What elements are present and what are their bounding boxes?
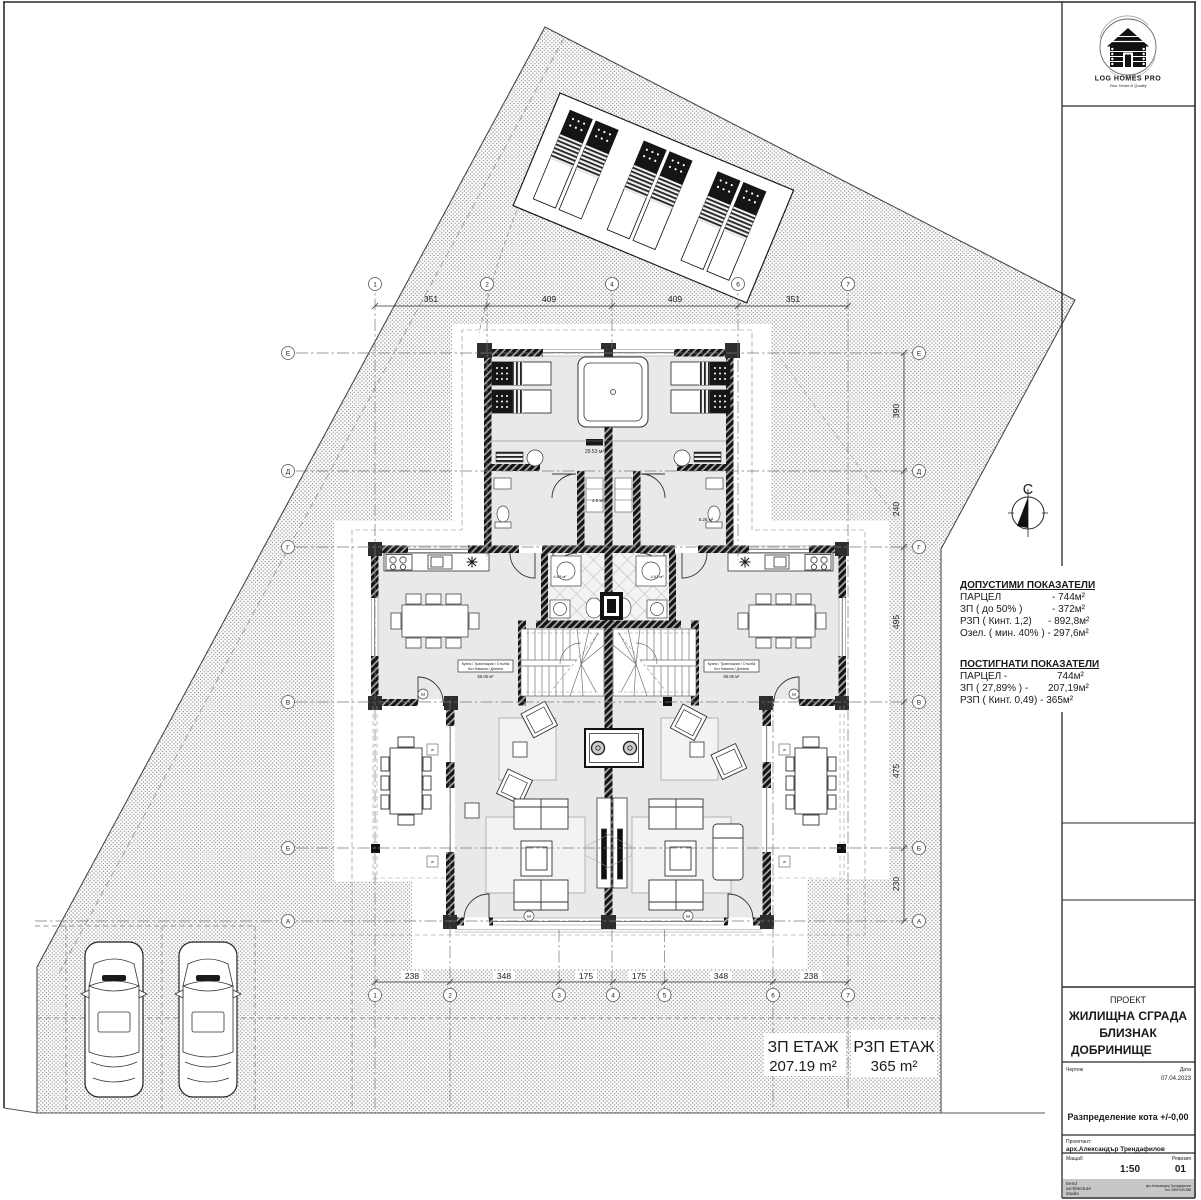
svg-text:230: 230 xyxy=(891,877,901,891)
svg-text:240: 240 xyxy=(891,502,901,516)
svg-text:РЗП ( Кинт. 1,2): РЗП ( Кинт. 1,2) xyxy=(960,616,1032,627)
svg-text:7: 7 xyxy=(846,282,850,289)
svg-text:- 744м²: - 744м² xyxy=(1052,592,1086,603)
svg-text:351: 351 xyxy=(424,294,438,304)
svg-text:4.63 м²: 4.63 м² xyxy=(651,574,665,579)
svg-text:4.0 м²: 4.0 м² xyxy=(592,498,605,503)
svg-text:М: М xyxy=(527,914,531,919)
svg-text:6.26 м²: 6.26 м² xyxy=(699,517,714,522)
svg-text:studio: studio xyxy=(1066,1191,1079,1197)
svg-text:348: 348 xyxy=(497,971,511,981)
svg-text:М: М xyxy=(792,692,796,697)
svg-text:1: 1 xyxy=(373,282,377,289)
svg-text:2: 2 xyxy=(448,993,452,1000)
svg-text:Д: Д xyxy=(917,469,922,476)
svg-text:5: 5 xyxy=(663,993,667,1000)
svg-text:Кът Камина / Дневна: Кът Камина / Дневна xyxy=(468,667,503,671)
svg-text:207,19м²: 207,19м² xyxy=(1048,683,1089,694)
svg-text:w: w xyxy=(783,747,786,752)
svg-text:3: 3 xyxy=(557,993,561,1000)
svg-text:Кухня / Трапезария / Стълба: Кухня / Трапезария / Стълба xyxy=(708,662,756,666)
svg-text:365 m²: 365 m² xyxy=(871,1058,918,1075)
svg-text:6: 6 xyxy=(736,282,740,289)
svg-text:495: 495 xyxy=(891,615,901,629)
svg-text:2: 2 xyxy=(485,282,489,289)
svg-text:ДОБРИНИЩЕ: ДОБРИНИЩЕ xyxy=(1071,1043,1152,1057)
svg-text:ДОПУСТИМИ ПОКАЗАТЕЛИ: ДОПУСТИМИ ПОКАЗАТЕЛИ xyxy=(960,580,1095,591)
svg-text:Мащаб: Мащаб xyxy=(1066,1156,1083,1162)
svg-text:Г: Г xyxy=(917,545,921,552)
svg-text:7: 7 xyxy=(846,993,850,1000)
svg-text:- 892,8м²: - 892,8м² xyxy=(1048,616,1090,627)
svg-text:Кът Камина / Дневна: Кът Камина / Дневна xyxy=(714,667,749,671)
svg-text:409: 409 xyxy=(542,294,556,304)
svg-text:Озел. ( мин. 40% ) - 297,6м²: Озел. ( мин. 40% ) - 297,6м² xyxy=(960,628,1089,639)
svg-text:В: В xyxy=(917,700,921,707)
svg-text:тел. 0899 535 888: тел. 0899 535 888 xyxy=(1165,1188,1191,1192)
svg-text:ПОСТИГНАТИ ПОКАЗАТЕЛИ: ПОСТИГНАТИ ПОКАЗАТЕЛИ xyxy=(960,659,1099,670)
svg-text:Разпределение кота +/-0,00: Разпределение кота +/-0,00 xyxy=(1067,1112,1188,1122)
svg-text:Д: Д xyxy=(286,469,291,476)
svg-text:М: М xyxy=(686,914,690,919)
svg-text:175: 175 xyxy=(632,971,646,981)
svg-text:1:50: 1:50 xyxy=(1120,1164,1140,1175)
svg-text:ЗП ( до 50% ): ЗП ( до 50% ) xyxy=(960,604,1022,615)
svg-text:65.06 м²: 65.06 м² xyxy=(478,674,495,679)
svg-text:01: 01 xyxy=(1175,1164,1187,1175)
svg-text:РЗП ( Кинт. 0,49) - 365м²: РЗП ( Кинт. 0,49) - 365м² xyxy=(960,695,1074,706)
svg-text:Е: Е xyxy=(917,351,922,358)
svg-text:ПАРЦЕЛ: ПАРЦЕЛ xyxy=(960,592,1001,603)
svg-text:238: 238 xyxy=(405,971,419,981)
svg-text:арх.Александър Трендафилов: арх.Александър Трендафилов xyxy=(1066,1146,1165,1153)
svg-text:ПАРЦЕЛ -: ПАРЦЕЛ - xyxy=(960,671,1007,682)
svg-text:БЛИЗНАК: БЛИЗНАК xyxy=(1099,1026,1157,1040)
svg-text:Чертеж: Чертеж xyxy=(1066,1067,1084,1073)
svg-text:w: w xyxy=(431,747,434,752)
svg-text:Кухня / Трапезария / Стълба: Кухня / Трапезария / Стълба xyxy=(462,662,510,666)
svg-text:ПРОЕКТ: ПРОЕКТ xyxy=(1110,995,1147,1005)
svg-text:LOG HOMES PRO: LOG HOMES PRO xyxy=(1095,76,1161,83)
svg-text:4: 4 xyxy=(611,993,615,1000)
svg-text:65.06 м²: 65.06 м² xyxy=(724,674,741,679)
svg-text:348: 348 xyxy=(714,971,728,981)
svg-text:Е: Е xyxy=(286,351,291,358)
svg-text:w: w xyxy=(783,859,786,864)
svg-text:ЖИЛИЩНА СГРАДА: ЖИЛИЩНА СГРАДА xyxy=(1068,1009,1187,1023)
svg-text:4.63 м²: 4.63 м² xyxy=(554,574,568,579)
svg-text:Your Home & Quality: Your Home & Quality xyxy=(1109,83,1147,88)
svg-text:07.04.2023: 07.04.2023 xyxy=(1161,1076,1192,1082)
svg-text:А: А xyxy=(286,919,291,926)
svg-text:ЗП ЕТАЖ: ЗП ЕТАЖ xyxy=(768,1039,839,1056)
svg-text:238: 238 xyxy=(804,971,818,981)
svg-text:ЗП ( 27,89% ) -: ЗП ( 27,89% ) - xyxy=(960,683,1028,694)
svg-text:Б: Б xyxy=(286,846,290,853)
svg-text:Г: Г xyxy=(286,545,290,552)
svg-text:Дата: Дата xyxy=(1180,1067,1191,1073)
svg-text:М: М xyxy=(421,692,425,697)
svg-text:w: w xyxy=(431,859,434,864)
svg-text:А: А xyxy=(917,919,922,926)
svg-text:175: 175 xyxy=(579,971,593,981)
svg-text:475: 475 xyxy=(891,764,901,778)
svg-text:Б: Б xyxy=(917,846,921,853)
svg-text:390: 390 xyxy=(891,404,901,418)
svg-text:1: 1 xyxy=(373,993,377,1000)
svg-text:29.53 м²: 29.53 м² xyxy=(585,449,604,455)
svg-text:409: 409 xyxy=(668,294,682,304)
svg-text:6: 6 xyxy=(771,993,775,1000)
svg-text:Ревизия: Ревизия xyxy=(1172,1156,1191,1162)
svg-text:В: В xyxy=(286,700,290,707)
svg-text:4: 4 xyxy=(610,282,614,289)
svg-text:207.19 m²: 207.19 m² xyxy=(769,1058,837,1075)
svg-text:Проектант:: Проектант: xyxy=(1066,1139,1092,1145)
svg-text:351: 351 xyxy=(786,294,800,304)
svg-text:744м²: 744м² xyxy=(1057,671,1085,682)
svg-text:- 372м²: - 372м² xyxy=(1052,604,1086,615)
svg-text:РЗП ЕТАЖ: РЗП ЕТАЖ xyxy=(853,1039,935,1056)
